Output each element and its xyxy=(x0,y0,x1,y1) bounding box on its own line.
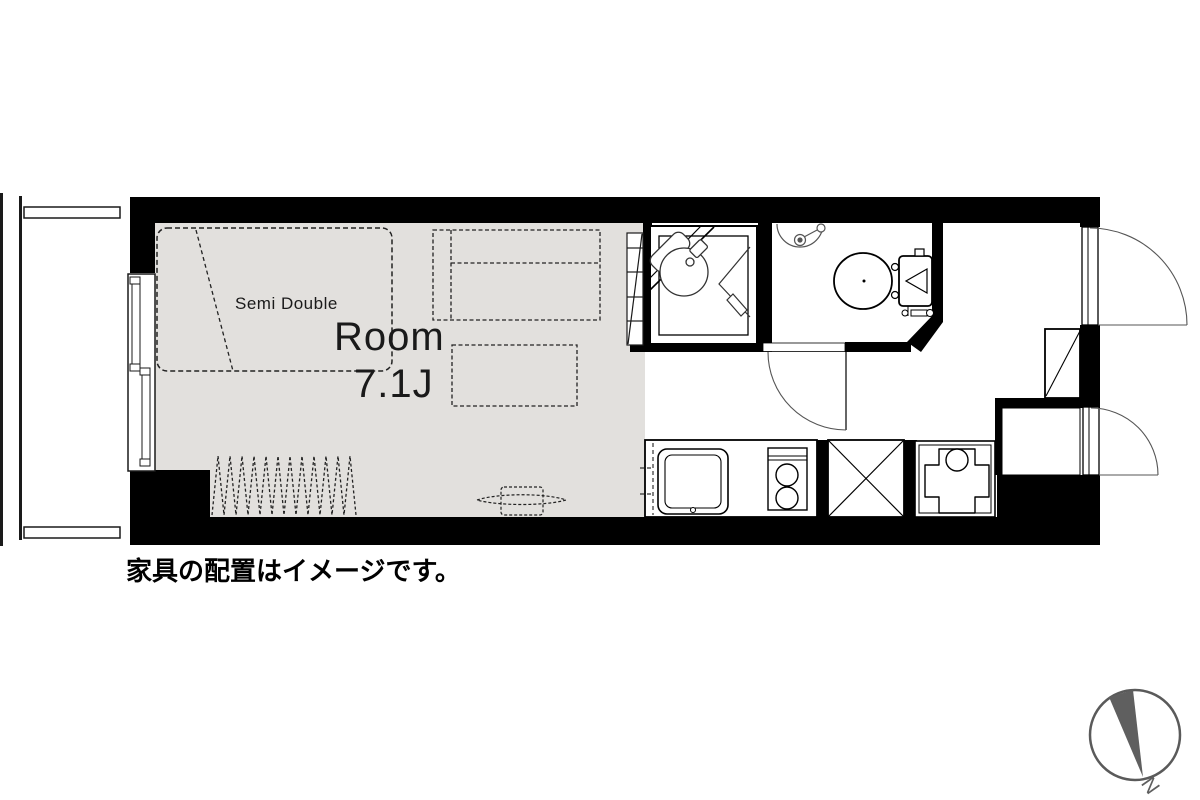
wall-right-middle xyxy=(1080,325,1100,408)
wall-bottom-right-block xyxy=(997,475,1100,545)
storage-room xyxy=(1002,408,1080,475)
toilet-plumbing xyxy=(902,306,934,317)
compass-icon xyxy=(1090,690,1180,780)
kitchen-counter-icon xyxy=(640,440,817,517)
sliding-window-icon xyxy=(128,274,155,471)
balcony-edge-line xyxy=(0,193,3,546)
room-size-label: 7.1J xyxy=(354,362,434,407)
wall-toilet-bottom xyxy=(845,342,911,352)
balcony-partition-bottom xyxy=(24,527,120,538)
storage-door-icon xyxy=(1083,407,1158,475)
floor-plan-page: Semi Double Room 7.1J 家具の配置はイメージです。 N xyxy=(0,0,1200,800)
wall-bottom xyxy=(208,517,1003,545)
wall-toilet-angled xyxy=(907,316,943,352)
balcony xyxy=(0,193,120,546)
tall-shelf-icon xyxy=(627,233,643,345)
toilet-room xyxy=(763,224,934,430)
bed-label: Semi Double xyxy=(235,294,338,314)
washing-machine-pan-icon xyxy=(915,441,995,517)
kitchen-sink-icon xyxy=(658,449,728,514)
stove-icon xyxy=(768,448,807,510)
shower-unit-icon xyxy=(647,226,757,344)
wall-toilet-right xyxy=(932,223,943,322)
wall-storage-left xyxy=(995,398,1002,475)
entrance-door-icon xyxy=(1082,227,1187,325)
floor-plan-drawing xyxy=(0,0,1200,800)
wall-bottom-left-block xyxy=(130,470,210,545)
wall-shower-toilet xyxy=(758,223,772,352)
wall-right-above-entrance xyxy=(1080,197,1100,227)
toilet-door-sill xyxy=(763,343,845,352)
room-name-label: Room xyxy=(334,315,445,360)
shoe-cabinet-icon xyxy=(1045,329,1080,398)
toilet-icon xyxy=(834,249,934,317)
appliance-space-icon xyxy=(828,440,904,517)
wall-top xyxy=(130,197,1100,223)
wall-left-upper xyxy=(130,197,155,273)
wall-basin-icon xyxy=(777,224,825,247)
balcony-railing xyxy=(19,196,22,540)
toilet-door-arc xyxy=(768,352,846,430)
balcony-partition-top xyxy=(24,207,120,218)
furniture-disclaimer-caption: 家具の配置はイメージです。 xyxy=(126,551,461,588)
